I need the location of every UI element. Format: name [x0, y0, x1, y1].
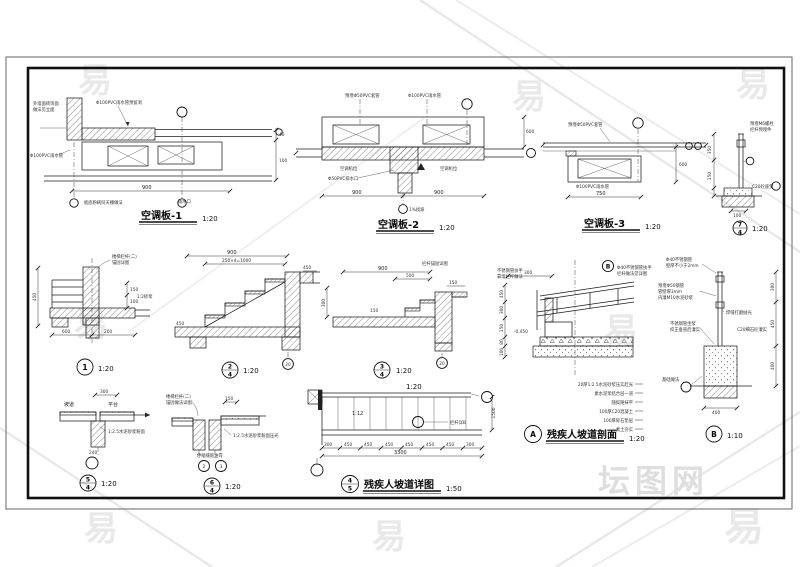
post-dim-1: 350 — [707, 146, 713, 154]
plan-note-1: 栏杆详B — [450, 419, 466, 426]
watermark-glyph: 易 — [736, 65, 770, 105]
ac1-dim-total: 900 — [142, 185, 152, 191]
d3-dim-1: 900 — [378, 266, 388, 272]
ac2-dim-left: 900 — [352, 190, 362, 196]
d3-ref-circle: 20 — [439, 361, 445, 367]
detail-b-post-footing: Φ40不锈钢管 壁厚不小于2mm 预埋Φ50钢管 管壁厚3mm 内灌M10水泥砂… — [658, 256, 778, 442]
dB-note-4: 管壁厚3mm — [658, 288, 682, 295]
dA-marker-letter: A — [530, 430, 536, 439]
plan-marker-num: 4 — [348, 478, 352, 485]
d3-dim-2: 500 — [406, 273, 414, 279]
ac1-note-wall-1: 外墙面砖饰面 — [33, 100, 59, 107]
d3-dim-3: 150 — [449, 280, 457, 286]
ac2-label-unit-2: 空调机位 — [440, 165, 458, 172]
ac3-dim-total: 750 — [596, 191, 606, 197]
d2-dim-2: 250×4=1000 — [222, 258, 251, 264]
plan-title: 残疾人坡道详图 — [364, 478, 434, 491]
drawing-svg: 易 易 易 易 易 易 易 易 坛图网 900 40 100 外墙面砖饰面 做法… — [0, 0, 800, 567]
d1-dim-b2: 200 — [104, 329, 112, 335]
detail-3-step-section: 栏杆锚固详图 900 500 150 300 150 20 3 4 1:20 — [321, 260, 467, 379]
ac1-note-wall-2: 做法见立面 — [33, 106, 55, 113]
ac2-label-unit-1: 空调机位 — [340, 165, 358, 172]
post-note-1: 预埋M6螺栓 — [750, 120, 774, 127]
cad-sheet: 易 易 易 易 易 易 易 易 坛图网 900 40 100 外墙面砖饰面 做法… — [0, 0, 800, 567]
post-dim-2: 150 — [707, 172, 713, 180]
d3-dim-4: 300 — [321, 299, 327, 307]
d6-ref-1: 2 — [203, 464, 206, 470]
dB-note-10: 基础做法 — [662, 376, 680, 383]
dB-note-7: 校正垂直后灌实 — [670, 326, 701, 333]
dA-dim-1: 300 — [499, 306, 505, 314]
ac2-dim-side: 600 — [526, 129, 534, 135]
d2-dim-4: 450 — [176, 321, 184, 327]
dB-marker-letter: B — [711, 430, 717, 439]
d3-dim-5: 150 — [370, 308, 378, 314]
ac2-note-drain: Φ50PVC排水口 — [328, 175, 358, 182]
dA-layer-5: 素土夯实 — [616, 426, 634, 433]
dA-layer-3: 100厚C20混凝土 — [599, 408, 634, 415]
post-note-3: C20砼座浆 — [752, 183, 774, 190]
dA-dim-0: 450 — [499, 290, 505, 298]
dB-note-5: 内灌M10水泥砂浆 — [658, 294, 694, 301]
d6-marker-num: 6 — [210, 480, 214, 487]
dA-layer-4: 100厚碎石垫层 — [603, 417, 633, 424]
d3-marker-num: 3 — [380, 364, 384, 371]
d5-scale: 1:20 — [101, 480, 117, 488]
dA-layer-0: 20厚1:2.5水泥砂浆压实赶光 — [578, 381, 634, 388]
ac1-scale: 1:20 — [202, 215, 218, 223]
d1-marker-num: 1 — [82, 363, 87, 372]
dA-note-4: 栏杆做法见详图 — [617, 270, 647, 277]
ac2-note-sleeve: 预埋Φ50PVC套管 — [345, 92, 380, 99]
ac2-scale: 1:20 — [439, 224, 455, 232]
ac1-note-drain: 雨水口 — [178, 198, 191, 205]
plan-slope-label: 1:20 — [406, 383, 422, 391]
d5-marker-sheet: 4 — [86, 485, 90, 492]
d6-dim: 150 — [225, 396, 233, 402]
plan-seg-4: 450 — [405, 442, 413, 448]
dA-layer-2: 随捣随抹平 — [612, 399, 634, 406]
dB-note-2: 壁厚不小于2mm — [666, 262, 699, 269]
dB-note-6: 不锈钢管坐浆 — [670, 320, 696, 327]
ac3-title: 空调板-3 — [584, 217, 625, 230]
plan-marker-sheet: 5 — [348, 486, 352, 493]
ac2-title: 空调板-2 — [378, 218, 419, 231]
watermark-glyph: 易 — [724, 504, 764, 550]
plan-seg-0: 300 — [324, 442, 332, 448]
dA-scale: 1:20 — [629, 435, 645, 443]
d3-scale: 1:20 — [396, 367, 412, 375]
plan-seg-5: 450 — [426, 442, 434, 448]
watermark-glyph: 易 — [84, 509, 118, 549]
ac3-dim-side: 600 — [679, 162, 687, 168]
plan-seg-1: 450 — [344, 442, 352, 448]
ac3-note-sleeve: 预埋Φ50PVC套管 — [568, 121, 603, 128]
dB-dim-0: 300 — [770, 283, 776, 291]
ac2-note-slope: 1%找坡 — [409, 206, 425, 213]
dA-ref-circle: B — [606, 264, 611, 271]
watermark-glyph: 易 — [512, 77, 546, 117]
dA-elevation: -0.450 — [514, 329, 528, 335]
ac3-note-pipe: Φ100PVC雨水管 — [576, 183, 610, 190]
plan-width: 1500 — [491, 407, 497, 418]
d1-note-2: 锚固详图 — [112, 259, 129, 266]
detail-ac-panel-2: 预埋Φ50PVC套管 Φ100PVC雨水管 空调机位 空调机位 Φ50PVC排水… — [294, 92, 536, 234]
post-scale: 1:20 — [752, 225, 768, 233]
d5-dim-bottom: 240 — [89, 450, 97, 456]
ac3-scale: 1:20 — [645, 223, 661, 231]
post-marker-num: 7 — [738, 222, 742, 229]
dB-note-8: 焊缝打磨抛光 — [726, 309, 752, 316]
dA-layer-1: 素水泥浆结合层一道 — [594, 390, 633, 397]
dB-dim-bottom: 400 — [712, 410, 720, 416]
post-note-2: 栏杆预埋件 — [750, 126, 772, 133]
d2-ref-circle: 20 — [285, 362, 291, 368]
plan-seg-3: 450 — [385, 442, 393, 448]
post-marker-sheet: 4 — [738, 230, 742, 237]
ac1-note-pipe-top: Φ100PVC雨水管预留洞 — [96, 99, 142, 106]
plan-seg-2: 450 — [364, 442, 372, 448]
d6-note-3: 1:2.5水泥砂浆粉面压光 — [233, 432, 279, 439]
d5-label-right: 平台 — [108, 401, 118, 408]
ac2-dim-right: 900 — [434, 190, 444, 196]
d1-dim-r1: 150 — [130, 287, 138, 293]
ac1-dim-r2: 100 — [279, 158, 287, 164]
dB-note-3: 预埋Φ50钢管 — [658, 282, 685, 289]
plan-seg-7: 300 — [466, 442, 474, 448]
plan-total: 3300 — [394, 450, 407, 456]
detail-6-double-wall: 楼梯栏杆(二) 锚固做法详图 150 1:2.5水泥砂浆粉面压光 伸缩缝嵌油膏 … — [166, 393, 279, 495]
d1-dim-b1: 600 — [62, 329, 70, 335]
d5-label-left: 坡道 — [64, 401, 74, 408]
dB-dim-2: 400 — [770, 362, 776, 370]
d6-note-4: 伸缩缝嵌油膏 — [197, 452, 223, 459]
dA-dim-3: 80 — [499, 339, 505, 345]
d2-scale: 1:20 — [243, 367, 259, 375]
dA-note-1: 不锈钢管扶手 — [497, 267, 523, 274]
plan-seg-6: 450 — [446, 442, 454, 448]
ac1-note-bottom: 板底粉刷同天棚做法 — [84, 199, 123, 206]
dA-dim-4: 100 — [499, 348, 505, 356]
dA-dim-2: 150 — [499, 324, 505, 332]
dA-dim-top: 300 — [524, 270, 532, 276]
plan-scale: 1:50 — [446, 485, 462, 493]
d6-scale: 1:20 — [225, 483, 241, 491]
detail-ramp-plan: 1:20 1:12 栏杆详B 1500 300 450 450 450 450 … — [308, 383, 497, 494]
d6-ref-2: 3 — [220, 464, 223, 470]
d3-marker-sheet: 4 — [380, 372, 384, 379]
d5-marker-num: 5 — [86, 477, 90, 484]
dB-scale: 1:10 — [727, 432, 743, 440]
d5-dim-top: 300 — [100, 389, 108, 395]
ac1-dim-r1: 40 — [279, 132, 285, 138]
detail-ac-panel-1: 900 40 100 外墙面砖饰面 做法见立面 Φ100PVC雨水管预留洞 Φ1… — [30, 98, 287, 225]
d6-note-2: 锚固做法详图 — [166, 399, 192, 406]
post-dim-3: 100 — [733, 213, 741, 219]
ac2-note-pipe: Φ100PVC雨水管 — [408, 92, 442, 99]
d1-scale: 1:20 — [98, 365, 114, 373]
sheet-border — [6, 57, 792, 509]
d2-dim-1: 900 — [227, 250, 237, 256]
detail-1-wall-section: 楼梯栏杆(二) 锚固详图 450 600 200 150 100 1:2砂浆 1… — [32, 253, 153, 375]
d2-dim-3: 450 — [303, 265, 311, 271]
dB-note-1: Φ40不锈钢管 — [666, 256, 693, 263]
d2-marker-num: 2 — [228, 364, 232, 371]
d1-note-3: 1:2砂浆 — [137, 293, 153, 300]
dA-layer-notes: 20厚1:2.5水泥砂浆压实赶光 素水泥浆结合层一道 随捣随抹平 100厚C20… — [578, 381, 643, 433]
dA-note-3: Φ40不锈钢管扶手 — [617, 264, 652, 271]
detail-2-stair-section: 900 250×4=1000 450 450 20 2 4 1:20 — [175, 250, 320, 379]
dA-title: 残疾人坡道剖面 — [547, 428, 617, 441]
watermark-glyph: 易 — [372, 517, 406, 557]
ac1-title: 空调板-1 — [141, 209, 182, 222]
plan-slope: 1:12 — [352, 411, 363, 417]
ac1-note-pipe-left: Φ100PVC雨水管 — [30, 152, 64, 159]
watermark-brand: 坛图网 — [598, 462, 709, 500]
detail-a-ramp-section: 不锈钢管扶手 靠墙栏杆做法 300 B Φ40不锈钢管扶手 栏杆做法见详图 45… — [497, 260, 652, 444]
d3-note-1: 栏杆锚固详图 — [422, 260, 448, 267]
d5-note-1: 1:2.5水泥砂浆粉面 — [108, 428, 145, 435]
dB-dim-1: 450 — [770, 320, 776, 328]
d6-marker-sheet: 4 — [210, 488, 214, 495]
d6-note-1: 楼梯栏杆(二) — [166, 393, 191, 400]
dB-note-9: C20细石砼灌实 — [737, 326, 768, 333]
d1-note-1: 楼梯栏杆(二) — [112, 253, 137, 260]
d2-marker-sheet: 4 — [228, 372, 232, 379]
d1-dim-left: 450 — [32, 293, 38, 301]
